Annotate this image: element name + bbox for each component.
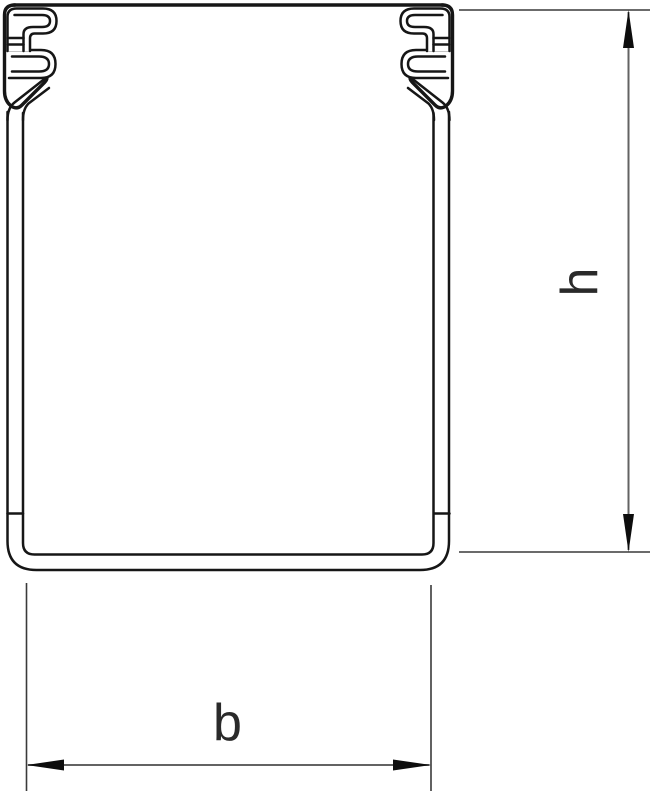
duct-outer-wall-outline [8, 112, 450, 570]
height-dimension: h [459, 10, 650, 552]
width-dimension: b [27, 583, 432, 791]
right-clip-assembly [401, 5, 453, 514]
width-dimension-label: b [213, 694, 242, 752]
technical-drawing-canvas: h b [0, 0, 657, 794]
left-clip-assembly [5, 5, 57, 514]
width-arrow-left-icon [27, 760, 65, 771]
duct-inner-wall-outline [23, 113, 434, 555]
height-arrow-up-icon [623, 10, 634, 48]
duct-cross-section-drawing: h b [0, 0, 657, 794]
width-arrow-right-icon [393, 760, 431, 771]
height-dimension-label: h [551, 268, 609, 297]
height-arrow-down-icon [623, 514, 634, 552]
